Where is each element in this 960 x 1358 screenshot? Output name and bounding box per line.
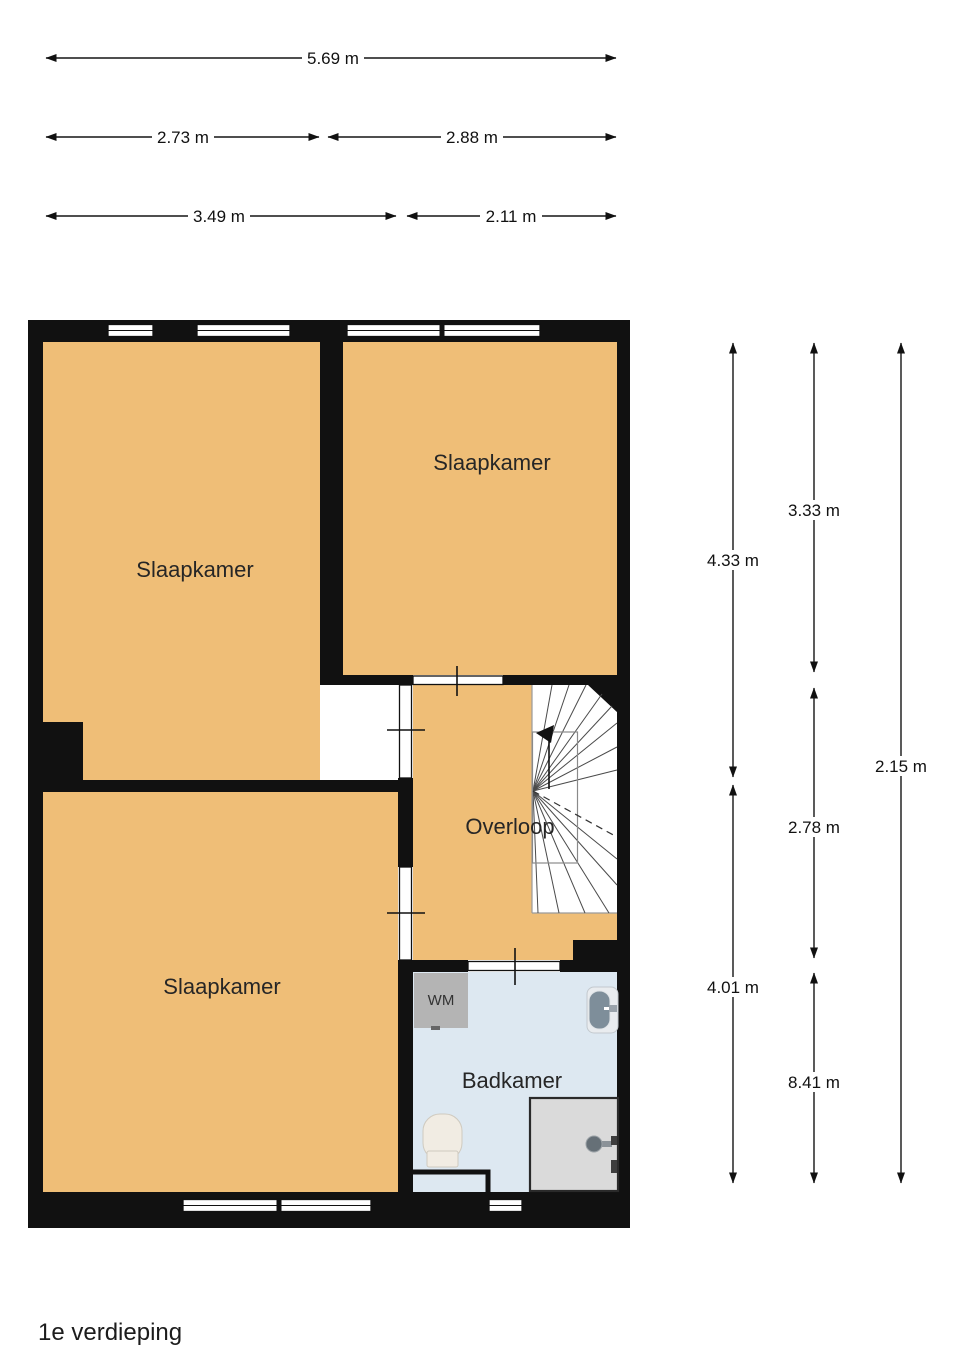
wall-between-top-bedrooms bbox=[320, 342, 343, 675]
wall-outer-left bbox=[28, 320, 43, 1228]
shower-arm bbox=[602, 1141, 612, 1147]
window-top-3 bbox=[347, 324, 540, 337]
shower-control-bottom bbox=[611, 1160, 617, 1173]
dimension-label: 2.73 m bbox=[157, 128, 209, 147]
staircase bbox=[532, 685, 618, 913]
shower-control-top bbox=[611, 1136, 617, 1145]
dimension-label: 8.41 m bbox=[788, 1073, 840, 1092]
wall-badkamer-north-left bbox=[398, 960, 468, 972]
window-top-1 bbox=[108, 325, 153, 337]
dimension-label: 4.01 m bbox=[707, 978, 759, 997]
dimension-label: 4.33 m bbox=[707, 551, 759, 570]
right-dimensions: 4.33 m 4.01 m 3.33 m 2.78 m 8.41 m 2.15 … bbox=[702, 343, 932, 1183]
room-label-slaapkamer-bottom: Slaapkamer bbox=[163, 974, 280, 999]
room-slaapkamer-top-right bbox=[343, 342, 617, 675]
top-dimensions: 5.69 m 2.73 m 2.88 m 3.49 m 2.11 m bbox=[46, 48, 616, 226]
wall-stair-stub bbox=[573, 940, 618, 962]
washing-machine-detail bbox=[431, 1026, 440, 1030]
dimension-label: 2.88 m bbox=[446, 128, 498, 147]
shower-head bbox=[586, 1136, 602, 1152]
wall-overloop-west-south bbox=[398, 960, 413, 1192]
toilet bbox=[423, 1114, 462, 1167]
window-bottom-2 bbox=[489, 1200, 522, 1212]
stair-area bbox=[532, 685, 617, 913]
toilet-tank bbox=[427, 1151, 458, 1167]
wall-overloop-north-right bbox=[503, 675, 630, 685]
shower bbox=[530, 1098, 618, 1191]
window-top-2 bbox=[197, 325, 290, 337]
wall-between-left-bedrooms bbox=[43, 780, 413, 792]
wall-overloop-north-left bbox=[320, 675, 413, 685]
floorplan-drawing: 5.69 m 2.73 m 2.88 m 3.49 m 2.11 m 4.33 … bbox=[0, 0, 960, 1358]
dimension-label: 2.15 m bbox=[875, 757, 927, 776]
room-label-slaapkamer-top-right: Slaapkamer bbox=[433, 450, 550, 475]
sink-faucet bbox=[609, 1005, 617, 1012]
sink bbox=[587, 987, 618, 1033]
window-bottom-1 bbox=[183, 1199, 371, 1212]
dimension-label: 3.33 m bbox=[788, 501, 840, 520]
dimension-label: 5.69 m bbox=[307, 49, 359, 68]
dimension-label: 3.49 m bbox=[193, 207, 245, 226]
floorplan-page: 5.69 m 2.73 m 2.88 m 3.49 m 2.11 m 4.33 … bbox=[0, 0, 960, 1358]
washing-machine: WM bbox=[414, 973, 468, 1030]
room-label-badkamer: Badkamer bbox=[462, 1068, 562, 1093]
dimension-label: 2.78 m bbox=[788, 818, 840, 837]
dimension-label: 2.11 m bbox=[486, 207, 537, 226]
floor-title: 1e verdieping bbox=[38, 1319, 182, 1346]
room-label-overloop: Overloop bbox=[465, 814, 554, 839]
room-label-slaapkamer-top-left: Slaapkamer bbox=[136, 557, 253, 582]
wall-outer-right bbox=[617, 320, 630, 1228]
washing-machine-label: WM bbox=[428, 992, 455, 1009]
wall-chimney-block bbox=[43, 722, 83, 780]
